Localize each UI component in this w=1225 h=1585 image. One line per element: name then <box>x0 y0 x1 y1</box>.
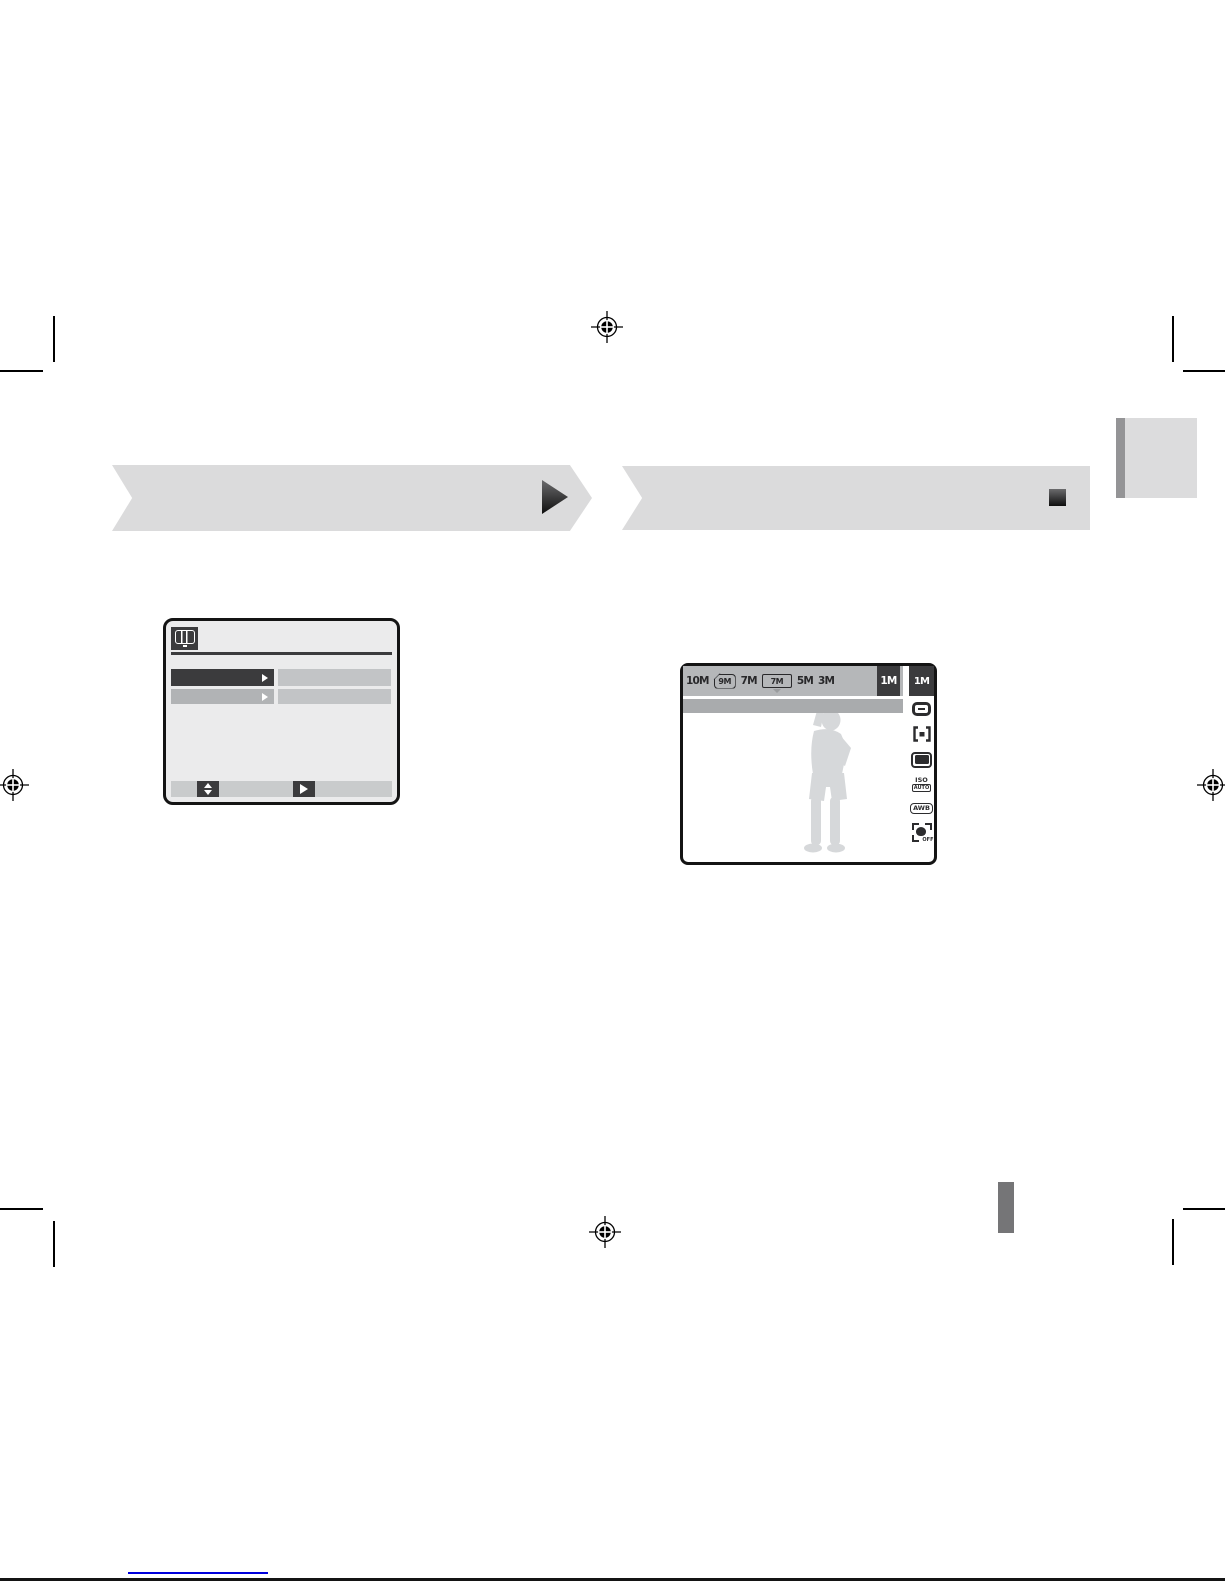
resolution-7m: 7M <box>741 675 757 687</box>
menu-header-divider <box>171 652 392 655</box>
face-detection-off-label: OFF <box>922 837 933 843</box>
focus-area-icon <box>912 726 932 742</box>
menu-footer-bar <box>171 781 392 797</box>
iso-value: AUTO <box>912 784 931 792</box>
menu-screen <box>163 618 400 805</box>
trim-mark <box>1172 1219 1174 1265</box>
triangle-right-icon <box>262 693 268 701</box>
face-glyph <box>916 827 926 836</box>
section-banner-right <box>622 466 1090 530</box>
menu-row-value <box>278 669 391 686</box>
menu-row <box>171 689 391 704</box>
lcd-screen: 10M 9M 7M 7M 5M 3M 1M 1M <box>680 663 937 865</box>
right-arrow-icon <box>293 781 315 797</box>
pointer-glyph <box>773 689 781 693</box>
trim-mark <box>1172 316 1174 362</box>
face-detection-off-icon: OFF <box>912 823 932 842</box>
menu-row-value <box>278 689 391 704</box>
current-resolution-badge: 1M <box>909 666 934 696</box>
manual-page: { "colors": { "banner_gray": "#dbdbdc", … <box>0 0 1225 1585</box>
triangle-right-icon <box>262 674 268 682</box>
arrow-right-glyph <box>300 784 308 794</box>
section-banner-left <box>112 465 592 531</box>
registration-mark-right <box>1196 768 1225 802</box>
resolution-7m-wide: 7M <box>771 677 784 686</box>
registration-mark-left <box>0 768 30 802</box>
resolution-5m: 5M <box>797 675 813 687</box>
resolution-9m-photo-icon: 9M <box>714 674 736 689</box>
menu-row-label <box>171 689 274 704</box>
person-silhouette <box>768 700 873 858</box>
menu-tab <box>171 627 198 650</box>
registration-mark-top <box>590 310 624 344</box>
forward-triangle-icon <box>542 480 568 514</box>
menu-row-selected <box>171 669 391 686</box>
camera-lcd-icon-stand <box>183 645 187 647</box>
stop-square-icon <box>1049 489 1066 506</box>
registration-mark-bottom <box>588 1215 622 1249</box>
display-icon <box>911 752 932 768</box>
page-bottom-rule <box>0 1578 1225 1581</box>
trim-mark <box>1183 1208 1225 1210</box>
iso-label: ISO <box>915 777 928 784</box>
resolution-9m: 9M <box>718 677 731 686</box>
trim-mark <box>0 1208 43 1210</box>
chapter-edge-tab <box>1116 418 1197 498</box>
trim-mark <box>53 1221 55 1267</box>
arrow-up-glyph <box>204 783 212 788</box>
resolution-1m-selected: 1M <box>877 666 900 696</box>
resolution-10m: 10M <box>686 675 709 687</box>
info-bar <box>683 699 903 713</box>
menu-row-label <box>171 669 274 686</box>
resolution-3m: 3M <box>818 675 834 687</box>
page-edge-marker <box>998 1182 1014 1233</box>
trim-mark <box>0 370 43 372</box>
trim-mark <box>1183 370 1225 372</box>
iso-auto-icon: ISO AUTO <box>912 777 931 792</box>
up-down-arrows-icon <box>197 781 219 797</box>
white-balance-icon: AWB <box>910 803 933 814</box>
resolution-bar: 10M 9M 7M 7M 5M 3M 1M <box>683 666 903 696</box>
trim-mark <box>53 316 55 362</box>
resolution-7m-wide-icon: 7M <box>762 674 792 688</box>
arrow-down-glyph <box>204 790 212 795</box>
quality-icon <box>912 702 931 716</box>
camera-lcd-icon <box>175 630 195 644</box>
lcd-sidebar: 1M ISO AUTO AWB OFF <box>909 666 934 862</box>
hyperlink-underline[interactable] <box>128 1572 268 1574</box>
